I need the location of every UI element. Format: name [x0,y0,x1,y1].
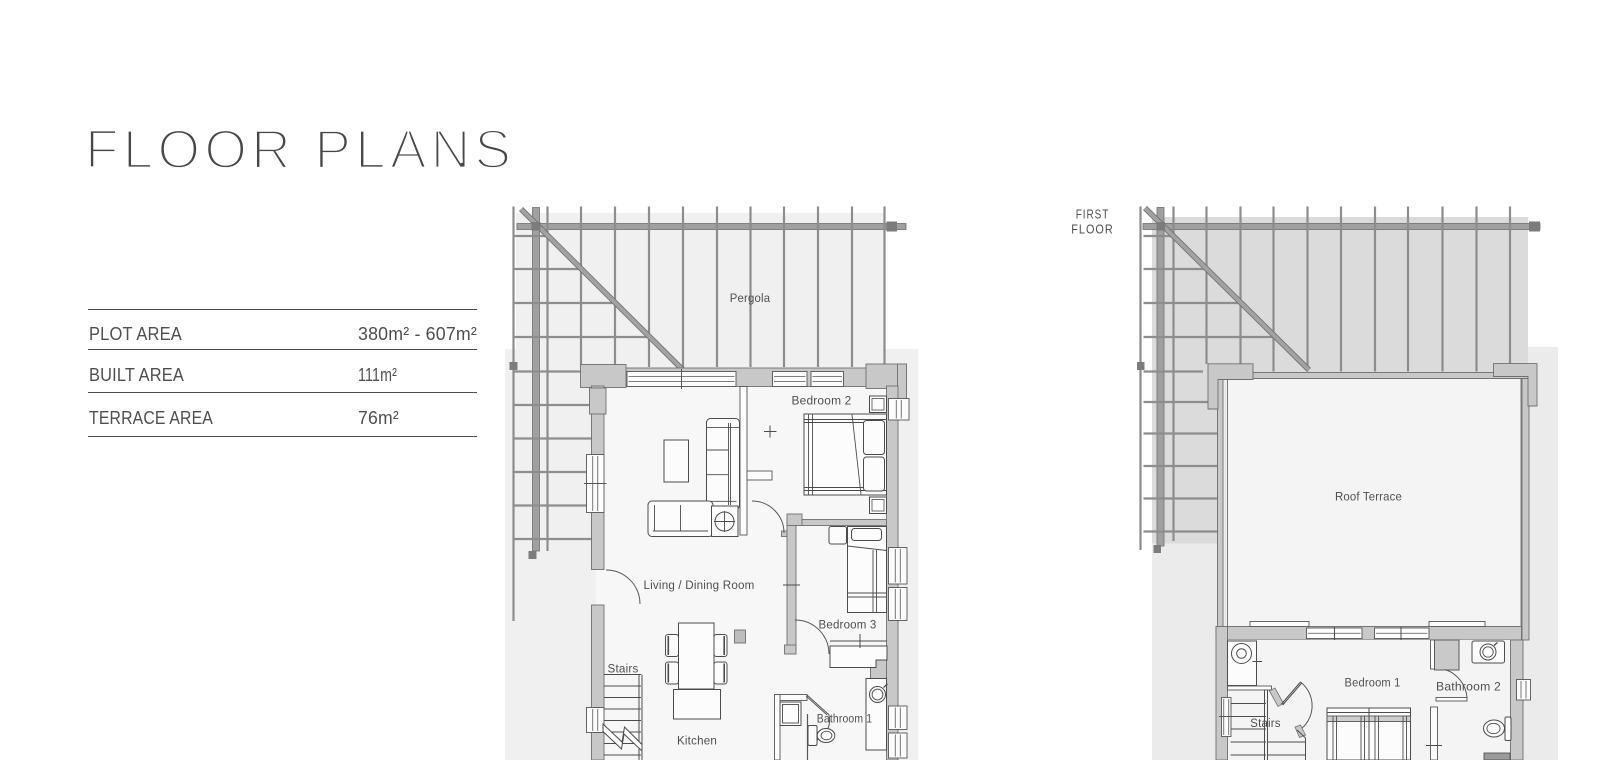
svg-text:FIRST: FIRST [1076,207,1110,222]
svg-text:BUILT AREA: BUILT AREA [89,365,185,385]
svg-text:Stairs: Stairs [608,662,639,676]
svg-text:Pergola: Pergola [730,291,771,305]
svg-text:Roof Terrace: Roof Terrace [1335,490,1402,504]
svg-text:TERRACE AREA: TERRACE AREA [89,408,214,428]
svg-text:Bedroom 1: Bedroom 1 [1345,676,1401,690]
svg-text:PLOT AREA: PLOT AREA [89,324,183,344]
svg-text:380m² - 607m²: 380m² - 607m² [358,324,477,344]
svg-text:Bedroom 2: Bedroom 2 [792,394,852,408]
svg-text:Bedroom 3: Bedroom 3 [819,618,877,632]
svg-text:Bathroom 1: Bathroom 1 [817,712,873,726]
svg-text:Stairs: Stairs [1250,716,1281,730]
svg-text:Living / Dining Room: Living / Dining Room [644,578,755,592]
svg-text:FLOOR: FLOOR [1071,221,1114,236]
svg-text:Kitchen: Kitchen [677,734,717,748]
svg-text:FLOOR PLANS: FLOOR PLANS [85,118,515,180]
svg-text:Bathroom 2: Bathroom 2 [1436,680,1501,694]
svg-text:76m²: 76m² [358,408,399,428]
svg-text:111m²: 111m² [358,365,397,385]
